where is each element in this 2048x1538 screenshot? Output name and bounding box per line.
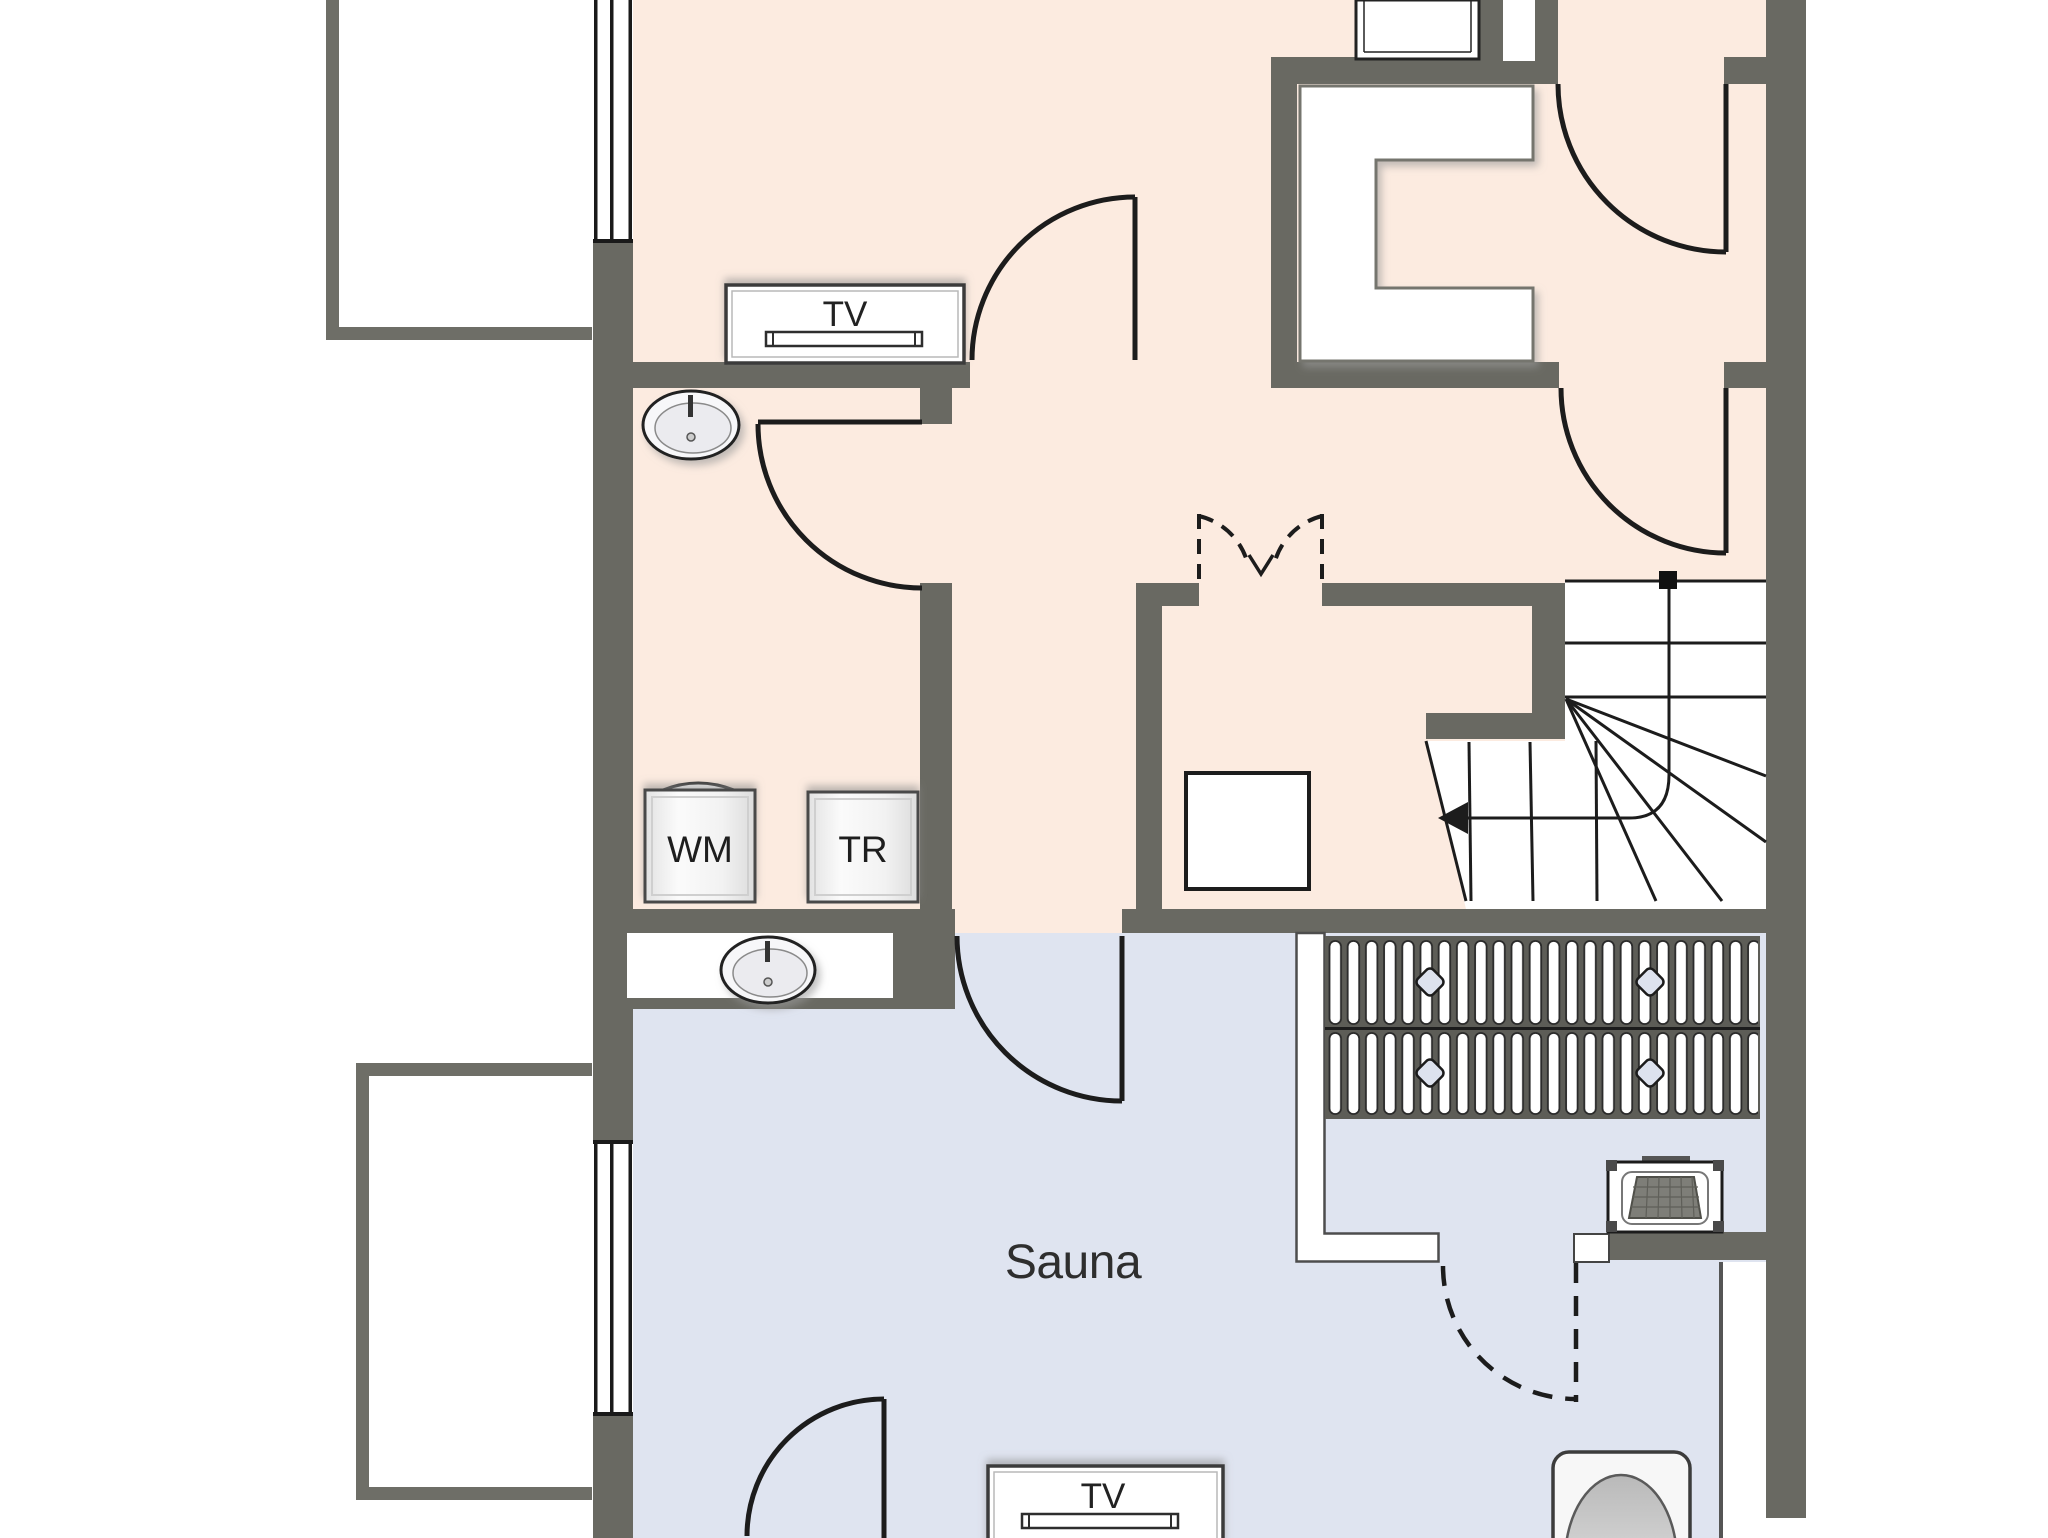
svg-text:TV: TV (823, 295, 868, 334)
svg-text:TR: TR (838, 829, 887, 870)
svg-text:Sauna: Sauna (1005, 1236, 1142, 1289)
svg-text:TV: TV (1081, 1477, 1126, 1516)
svg-text:WM: WM (667, 829, 733, 870)
